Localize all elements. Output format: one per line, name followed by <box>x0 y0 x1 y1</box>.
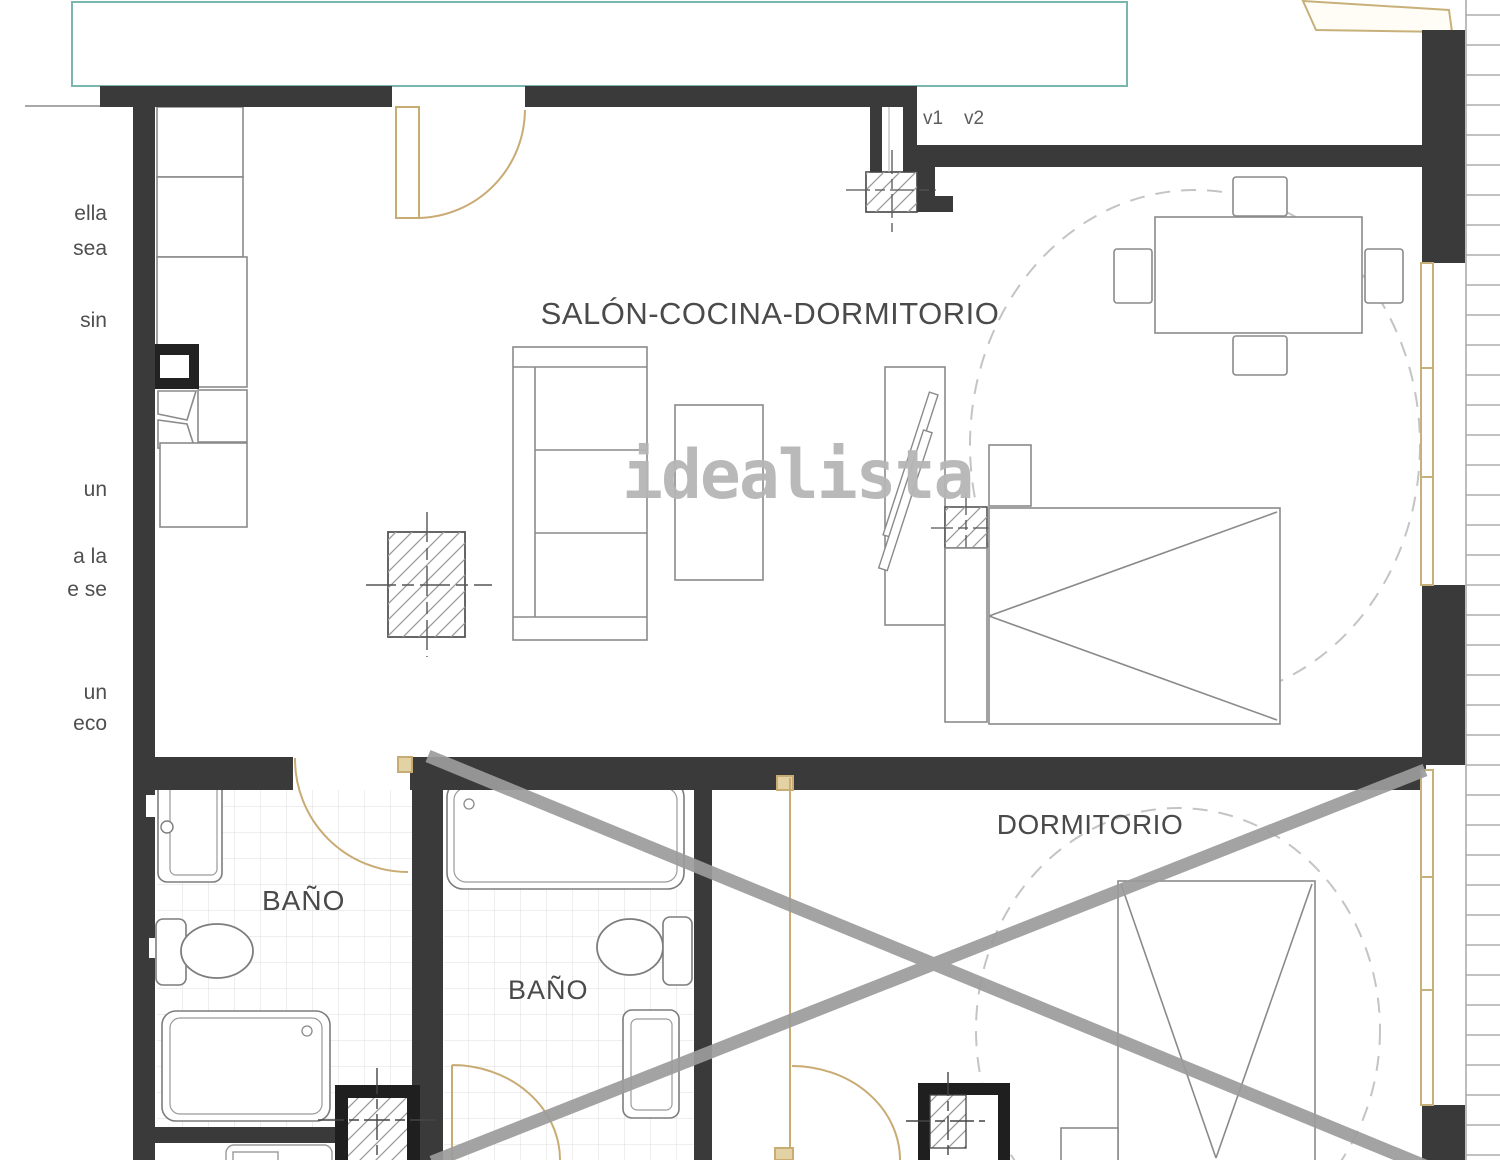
window-label-v1: v1 <box>923 108 943 130</box>
room-label-living: SALÓN-COCINA-DORMITORIO <box>500 298 1040 331</box>
room-label-bathroom2: BAÑO <box>508 976 589 1004</box>
idealista-watermark: idealista <box>622 436 972 515</box>
chair-top <box>1233 177 1287 216</box>
chair-bottom <box>1233 336 1287 375</box>
floorplan-image: SALÓN-COCINA-DORMITORIO DORMITORIO BAÑO … <box>0 0 1500 1160</box>
toilet-bowl <box>597 919 663 975</box>
margin-text-fragment: un <box>0 478 107 502</box>
toilet-tank <box>663 917 692 985</box>
floorplan-drawing <box>0 0 1500 1160</box>
bed-living <box>989 508 1280 724</box>
bathtub <box>447 781 684 889</box>
wall-notch <box>146 795 155 817</box>
kitchen-counter <box>157 107 247 527</box>
door-hinge <box>775 1148 793 1160</box>
corridor-door-arc <box>792 1066 900 1160</box>
stair-rungs <box>1466 0 1500 1160</box>
margin-text-fragment: e se <box>0 578 107 602</box>
nightstand-living <box>989 445 1031 506</box>
margin-text-fragment: eco <box>0 712 107 736</box>
entry-door-arc <box>419 110 525 218</box>
bathtub <box>162 1011 330 1121</box>
entry-door-leaf <box>396 107 419 218</box>
margin-text-fragment: ella <box>0 202 107 226</box>
room-label-bedroom: DORMITORIO <box>994 810 1186 839</box>
margin-text-fragment: sin <box>0 309 107 333</box>
bed-headboard <box>945 548 987 722</box>
wall-notch <box>149 938 155 958</box>
bed-bedroom <box>1118 881 1315 1160</box>
partial-fixtures <box>226 1145 332 1160</box>
teal-outline <box>72 2 1127 86</box>
window-right-bottom <box>1421 770 1433 1105</box>
door-hinge <box>398 757 412 772</box>
faucet <box>161 821 173 833</box>
chair-right <box>1365 249 1403 303</box>
kitchen-appliance <box>150 344 199 389</box>
margin-text-fragment: un <box>0 681 107 705</box>
column-hatched-corridor <box>906 1072 1010 1160</box>
nightstand-bedroom <box>1061 1128 1118 1160</box>
dining-table <box>1155 217 1362 333</box>
window-label-v2: v2 <box>964 108 984 130</box>
exterior-door-shape <box>1303 1 1452 32</box>
room-label-bathroom1: BAÑO <box>262 886 345 915</box>
toilet-bowl <box>181 924 253 978</box>
chair-left <box>1114 249 1152 303</box>
dining-set <box>1114 177 1403 375</box>
margin-text-fragment: sea <box>0 237 107 261</box>
margin-text-fragment: a la <box>0 545 107 569</box>
column-hatched-living <box>366 512 492 657</box>
window-right-top <box>1421 263 1433 585</box>
